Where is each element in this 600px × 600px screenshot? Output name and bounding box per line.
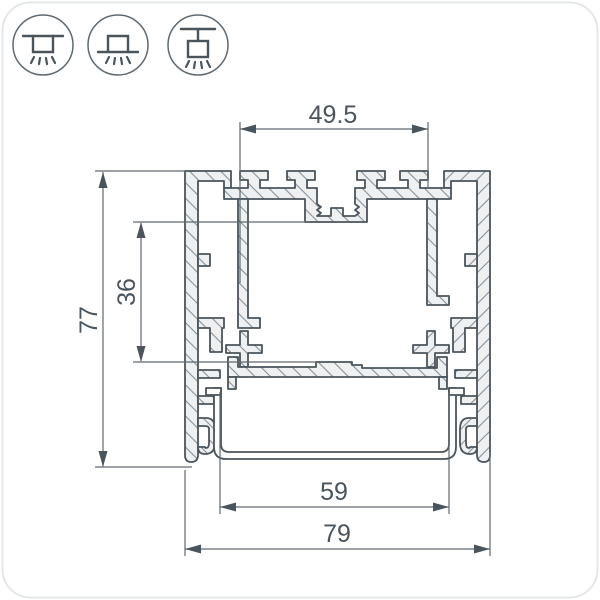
arrowhead <box>412 125 428 134</box>
icon-circle <box>13 15 73 75</box>
arrowhead <box>137 346 146 362</box>
arrowhead <box>433 503 449 512</box>
dim-label-overall-height: 77 <box>75 306 103 334</box>
diffuser-lip-left <box>206 388 221 395</box>
light-rays <box>186 61 210 68</box>
dim-label-top-slot-width: 49.5 <box>309 101 358 129</box>
arrowhead <box>185 545 201 554</box>
diffuser-lens <box>214 388 456 459</box>
arrowhead <box>240 125 256 134</box>
divider-plate <box>228 357 447 377</box>
suspended-mounting-icon <box>168 15 228 75</box>
arrowhead <box>99 172 108 188</box>
dim-overall-height: 77 <box>75 171 192 467</box>
dim-label-overall-width: 79 <box>323 520 351 548</box>
icon-circle <box>88 15 148 75</box>
top-plate-screw-channel <box>224 171 451 222</box>
dimension-annotations: 49.5 77 36 59 <box>75 101 490 556</box>
left-shell <box>185 171 262 462</box>
diffuser-support-left <box>228 377 236 389</box>
dim-label-diffuser-width: 59 <box>320 478 348 506</box>
dim-label-inner-height: 36 <box>113 278 141 306</box>
inner-wall-left <box>238 199 260 328</box>
arrowhead <box>474 545 490 554</box>
arrowhead <box>137 222 146 238</box>
card-border <box>3 3 598 598</box>
screenshot-canvas: 49.5 77 36 59 <box>0 0 600 600</box>
arrowhead <box>99 451 108 467</box>
arrowhead <box>220 503 236 512</box>
diffuser-support-right <box>439 377 447 389</box>
diffuser-lip-right <box>449 388 464 395</box>
profile-cross-section <box>185 171 490 462</box>
inner-wall-right <box>427 199 449 305</box>
mounting-icons <box>13 15 228 75</box>
surface-mounting-icon <box>88 15 148 75</box>
light-rays <box>106 57 130 64</box>
icon-circle <box>168 15 228 75</box>
recessed-mounting-icon <box>13 15 73 75</box>
light-rays <box>31 57 55 64</box>
technical-drawing: 49.5 77 36 59 <box>0 0 600 600</box>
